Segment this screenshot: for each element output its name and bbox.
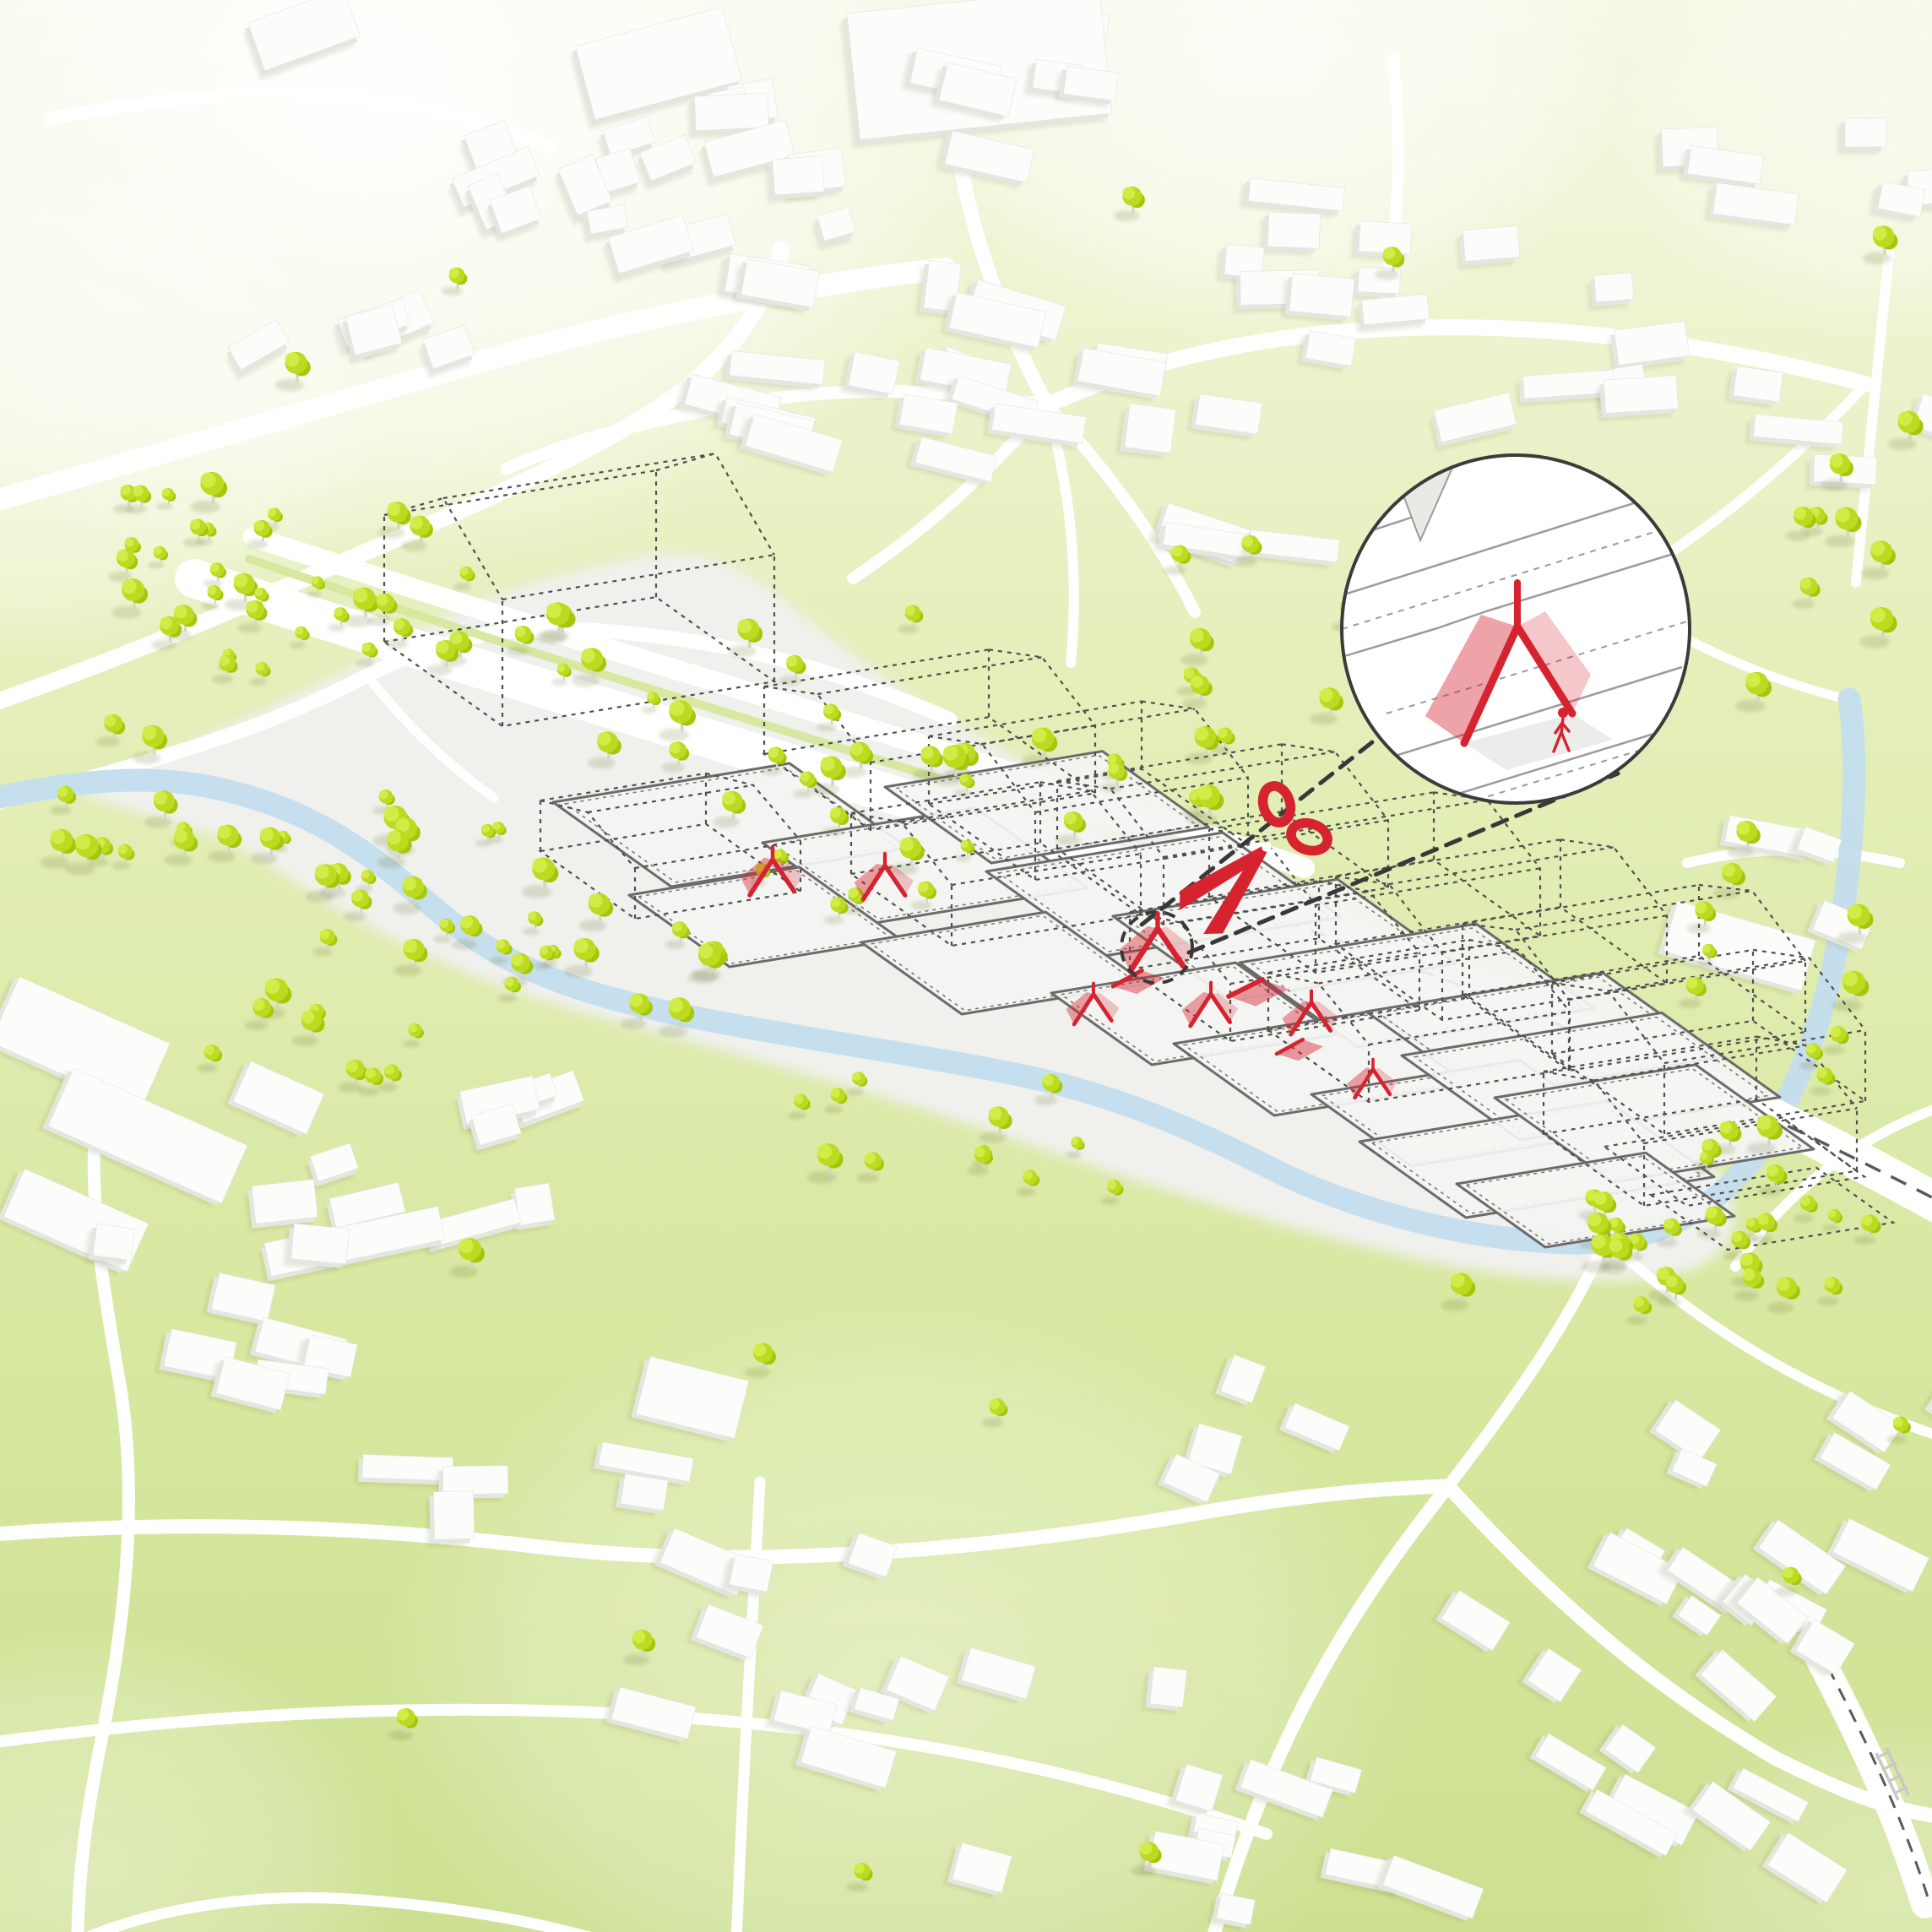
building (1116, 403, 1176, 460)
site-map-canvas (0, 0, 1932, 1932)
building (1354, 294, 1430, 333)
building (426, 1491, 475, 1548)
building (244, 1180, 318, 1232)
building (765, 156, 825, 204)
building (1596, 375, 1679, 421)
aerial-masterplan-view (0, 0, 1932, 1932)
building (1281, 273, 1354, 324)
building (1837, 118, 1886, 155)
building (1455, 225, 1520, 269)
building (1725, 365, 1783, 409)
building (1260, 212, 1321, 257)
building (283, 1223, 350, 1272)
